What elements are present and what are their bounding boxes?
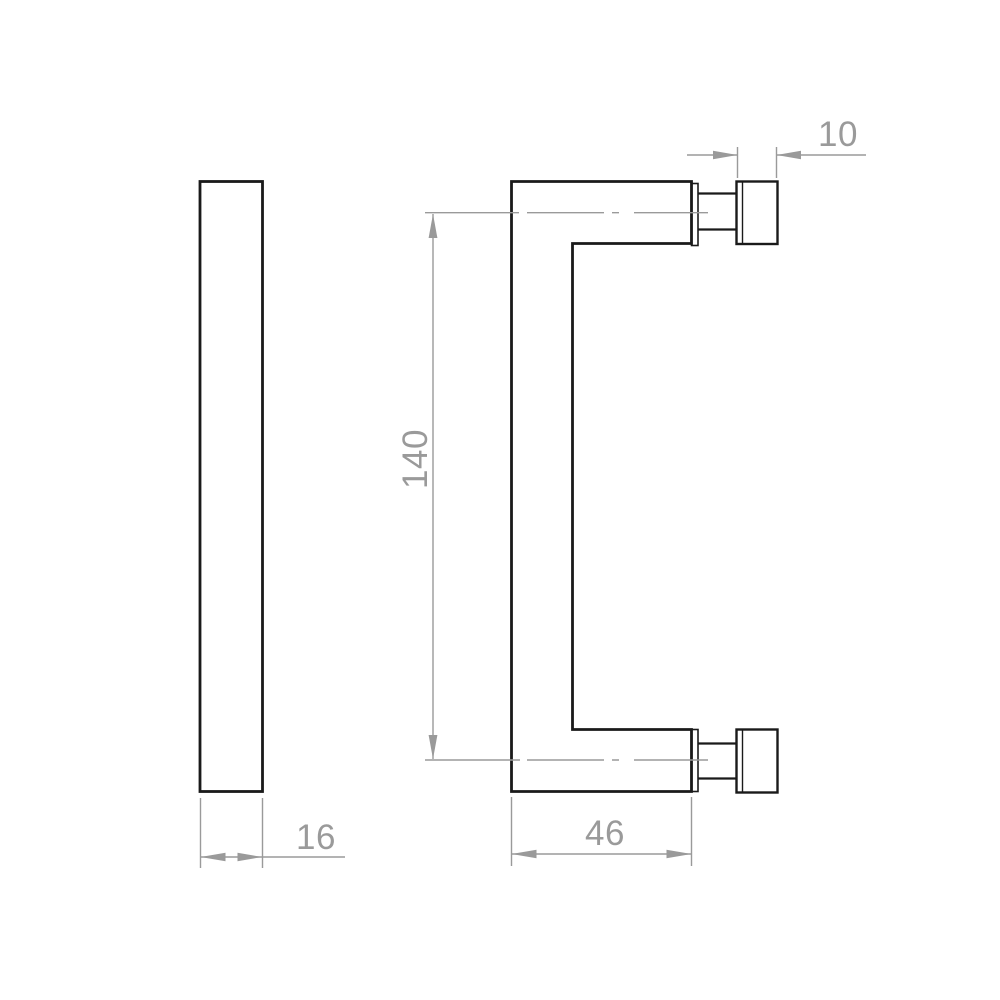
dim-140-arrow-down	[429, 735, 438, 759]
model-views	[200, 182, 778, 793]
dim-height-140	[425, 213, 520, 760]
handle-profile	[512, 182, 692, 792]
dim-10-arrow-right	[777, 151, 802, 159]
dim-46-arrow-left	[512, 850, 537, 858]
dim-10-arrow-left	[713, 151, 738, 159]
dim-16-arrow-right	[238, 853, 263, 861]
side-view	[512, 182, 778, 793]
spindle-bottom	[698, 744, 737, 779]
dim-140-label: 140	[396, 429, 435, 489]
dim-46-arrow-right	[667, 850, 692, 858]
dim-16-label: 16	[296, 818, 336, 857]
technical-drawing-canvas: 140 46 16 10	[0, 0, 1000, 1000]
front-view	[200, 182, 263, 792]
dim-140-arrow-up	[429, 214, 438, 238]
dim-10-label: 10	[818, 115, 858, 154]
dim-46-label: 46	[585, 814, 625, 853]
arrowheads	[201, 151, 802, 861]
front-view-bar	[200, 182, 263, 792]
dim-16-arrow-left	[201, 853, 226, 861]
handle-drawing-svg: 140 46 16 10	[0, 0, 1000, 1000]
spindle-top	[698, 194, 737, 230]
